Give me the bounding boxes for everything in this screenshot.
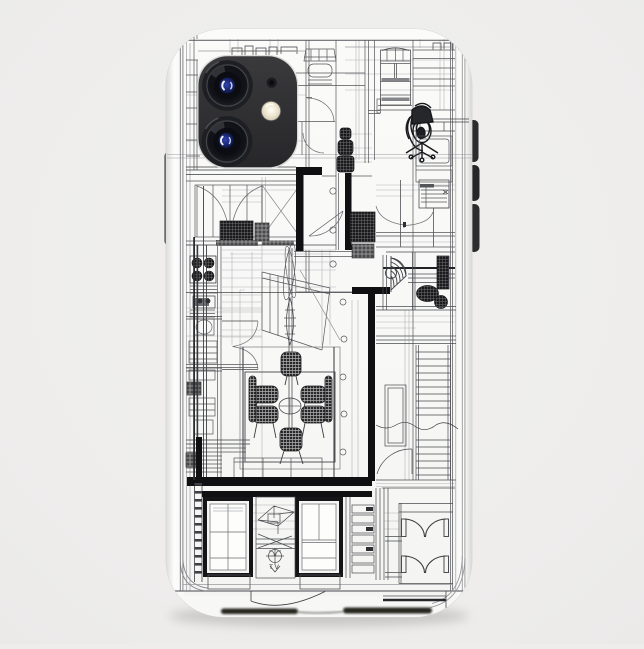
- svg-text:TV: TV: [269, 564, 280, 571]
